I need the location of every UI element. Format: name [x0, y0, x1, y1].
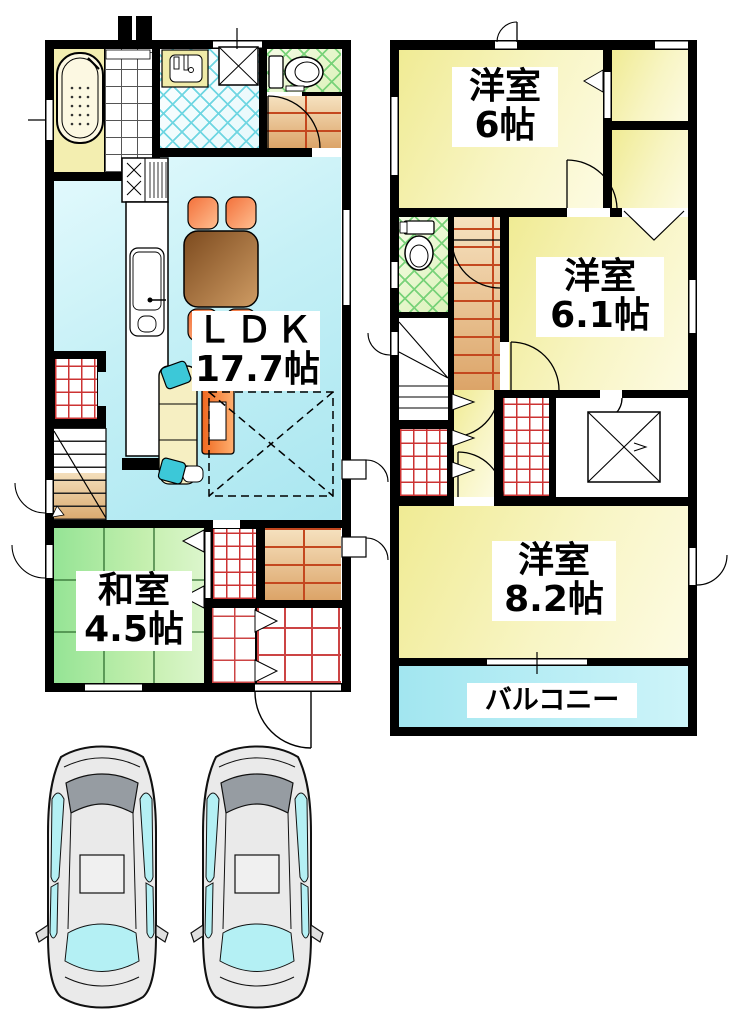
doorway-opening [600, 390, 622, 398]
window-icon [45, 545, 54, 578]
window-icon [390, 332, 399, 355]
label-ldk: ＬＤＫ 17.7帖 [192, 311, 320, 391]
wall-segment [98, 406, 106, 428]
wall-segment [610, 208, 622, 217]
genkan-tile-icon [212, 608, 255, 683]
closet-grid-icon [212, 528, 257, 600]
wall-segment [587, 658, 697, 666]
room-name: 洋室 [539, 258, 661, 297]
doorway-opening [268, 92, 302, 96]
wall-segment [45, 520, 213, 528]
room-name: ＬＤＫ [195, 312, 317, 351]
shower-floor-icon [104, 49, 152, 172]
wall-segment [390, 40, 697, 50]
wall-segment [390, 312, 454, 318]
label-bedroom-c: 洋室 8.2帖 [492, 541, 616, 621]
wall-segment [622, 390, 688, 398]
doorway-opening [454, 497, 494, 506]
window-icon [85, 683, 142, 692]
window-slit [132, 16, 136, 40]
entry-door-opening [255, 683, 341, 692]
wall-segment [152, 148, 312, 157]
doorway-opening [622, 208, 686, 217]
wall-segment [45, 351, 106, 358]
hall-floor-1f [265, 528, 341, 600]
label-bedroom-a: 洋室 6帖 [452, 67, 558, 147]
room-toilet-1f [267, 49, 341, 92]
wall-segment [603, 50, 612, 72]
wall-segment [257, 520, 265, 608]
wall-segment [390, 208, 567, 217]
room-washroom [160, 49, 259, 148]
wall-segment [448, 217, 454, 497]
sliding-door-icon [204, 532, 212, 598]
closet-2f [612, 130, 688, 208]
label-washitsu: 和室 4.5帖 [76, 571, 192, 651]
window-icon [342, 210, 351, 305]
hall-floor-2f [454, 217, 500, 390]
window-icon [45, 100, 54, 140]
closet-grid-icon [502, 390, 550, 497]
room-size: 8.2帖 [495, 581, 613, 620]
doorway-opening [312, 148, 341, 157]
void-area [556, 398, 688, 497]
window-icon [487, 658, 587, 666]
wall-segment [45, 40, 351, 49]
wall-segment [98, 351, 106, 372]
closet-grid-icon [399, 428, 448, 497]
closet-2f [612, 50, 688, 121]
wall-segment [204, 600, 351, 608]
wall-segment [494, 390, 502, 497]
car-icon [36, 747, 168, 1008]
floorplan-canvas: ＬＤＫ 17.7帖 和室 4.5帖 洋室 6帖 洋室 6.1帖 洋室 8.2帖 … [0, 0, 735, 1024]
wall-segment [122, 458, 160, 470]
room-size: 6帖 [455, 107, 555, 146]
car-icon [191, 747, 323, 1008]
doorway-opening [500, 342, 509, 388]
wall-segment [603, 121, 688, 130]
doorway-opening [227, 520, 240, 528]
window-icon [390, 97, 399, 175]
entry-door-arc-icon [255, 692, 311, 748]
genkan-tile-icon [257, 608, 341, 683]
entry-hall-1f [267, 96, 341, 148]
wall-segment [390, 727, 697, 736]
room-name: 洋室 [455, 68, 555, 107]
label-bedroom-b: 洋室 6.1帖 [536, 257, 664, 337]
room-name: バルコニー [470, 686, 634, 715]
room-size: 6.1帖 [539, 297, 661, 336]
room-toilet-2f [399, 217, 448, 312]
room-name: 洋室 [495, 542, 613, 581]
wall-segment [45, 172, 160, 181]
wall-segment [688, 40, 697, 736]
wall-segment [390, 497, 454, 506]
balcony-door-opening [688, 548, 697, 585]
wall-segment [390, 658, 487, 666]
wall-segment [603, 118, 612, 208]
wall-segment [240, 520, 342, 528]
wall-segment [302, 92, 342, 96]
wall-segment [152, 40, 160, 181]
window-icon [390, 262, 399, 288]
wall-segment [494, 497, 697, 506]
room-size: 4.5帖 [79, 611, 189, 650]
staircase-icon [399, 318, 448, 420]
wall-segment [342, 40, 351, 692]
closet-door-opening [603, 72, 612, 118]
closet-grid-icon [54, 358, 98, 420]
wall-segment [259, 40, 267, 157]
doorway-opening [567, 208, 610, 217]
wall-segment [550, 390, 556, 497]
room-size: 17.7帖 [195, 351, 317, 390]
window-icon [45, 480, 54, 513]
wall-segment [45, 420, 106, 428]
window-icon [688, 280, 697, 333]
window-icon [213, 40, 262, 49]
wall-segment [204, 598, 212, 692]
room-name: 和室 [79, 572, 189, 611]
wall-segment [255, 608, 257, 683]
wall-segment [204, 520, 212, 532]
hall-2f [454, 390, 494, 497]
staircase-lower-flight [54, 473, 106, 520]
wall-segment [500, 217, 509, 342]
wall-segment [390, 420, 454, 428]
window-icon [495, 40, 517, 50]
window-icon [655, 40, 688, 50]
label-balcony: バルコニー [467, 683, 637, 718]
